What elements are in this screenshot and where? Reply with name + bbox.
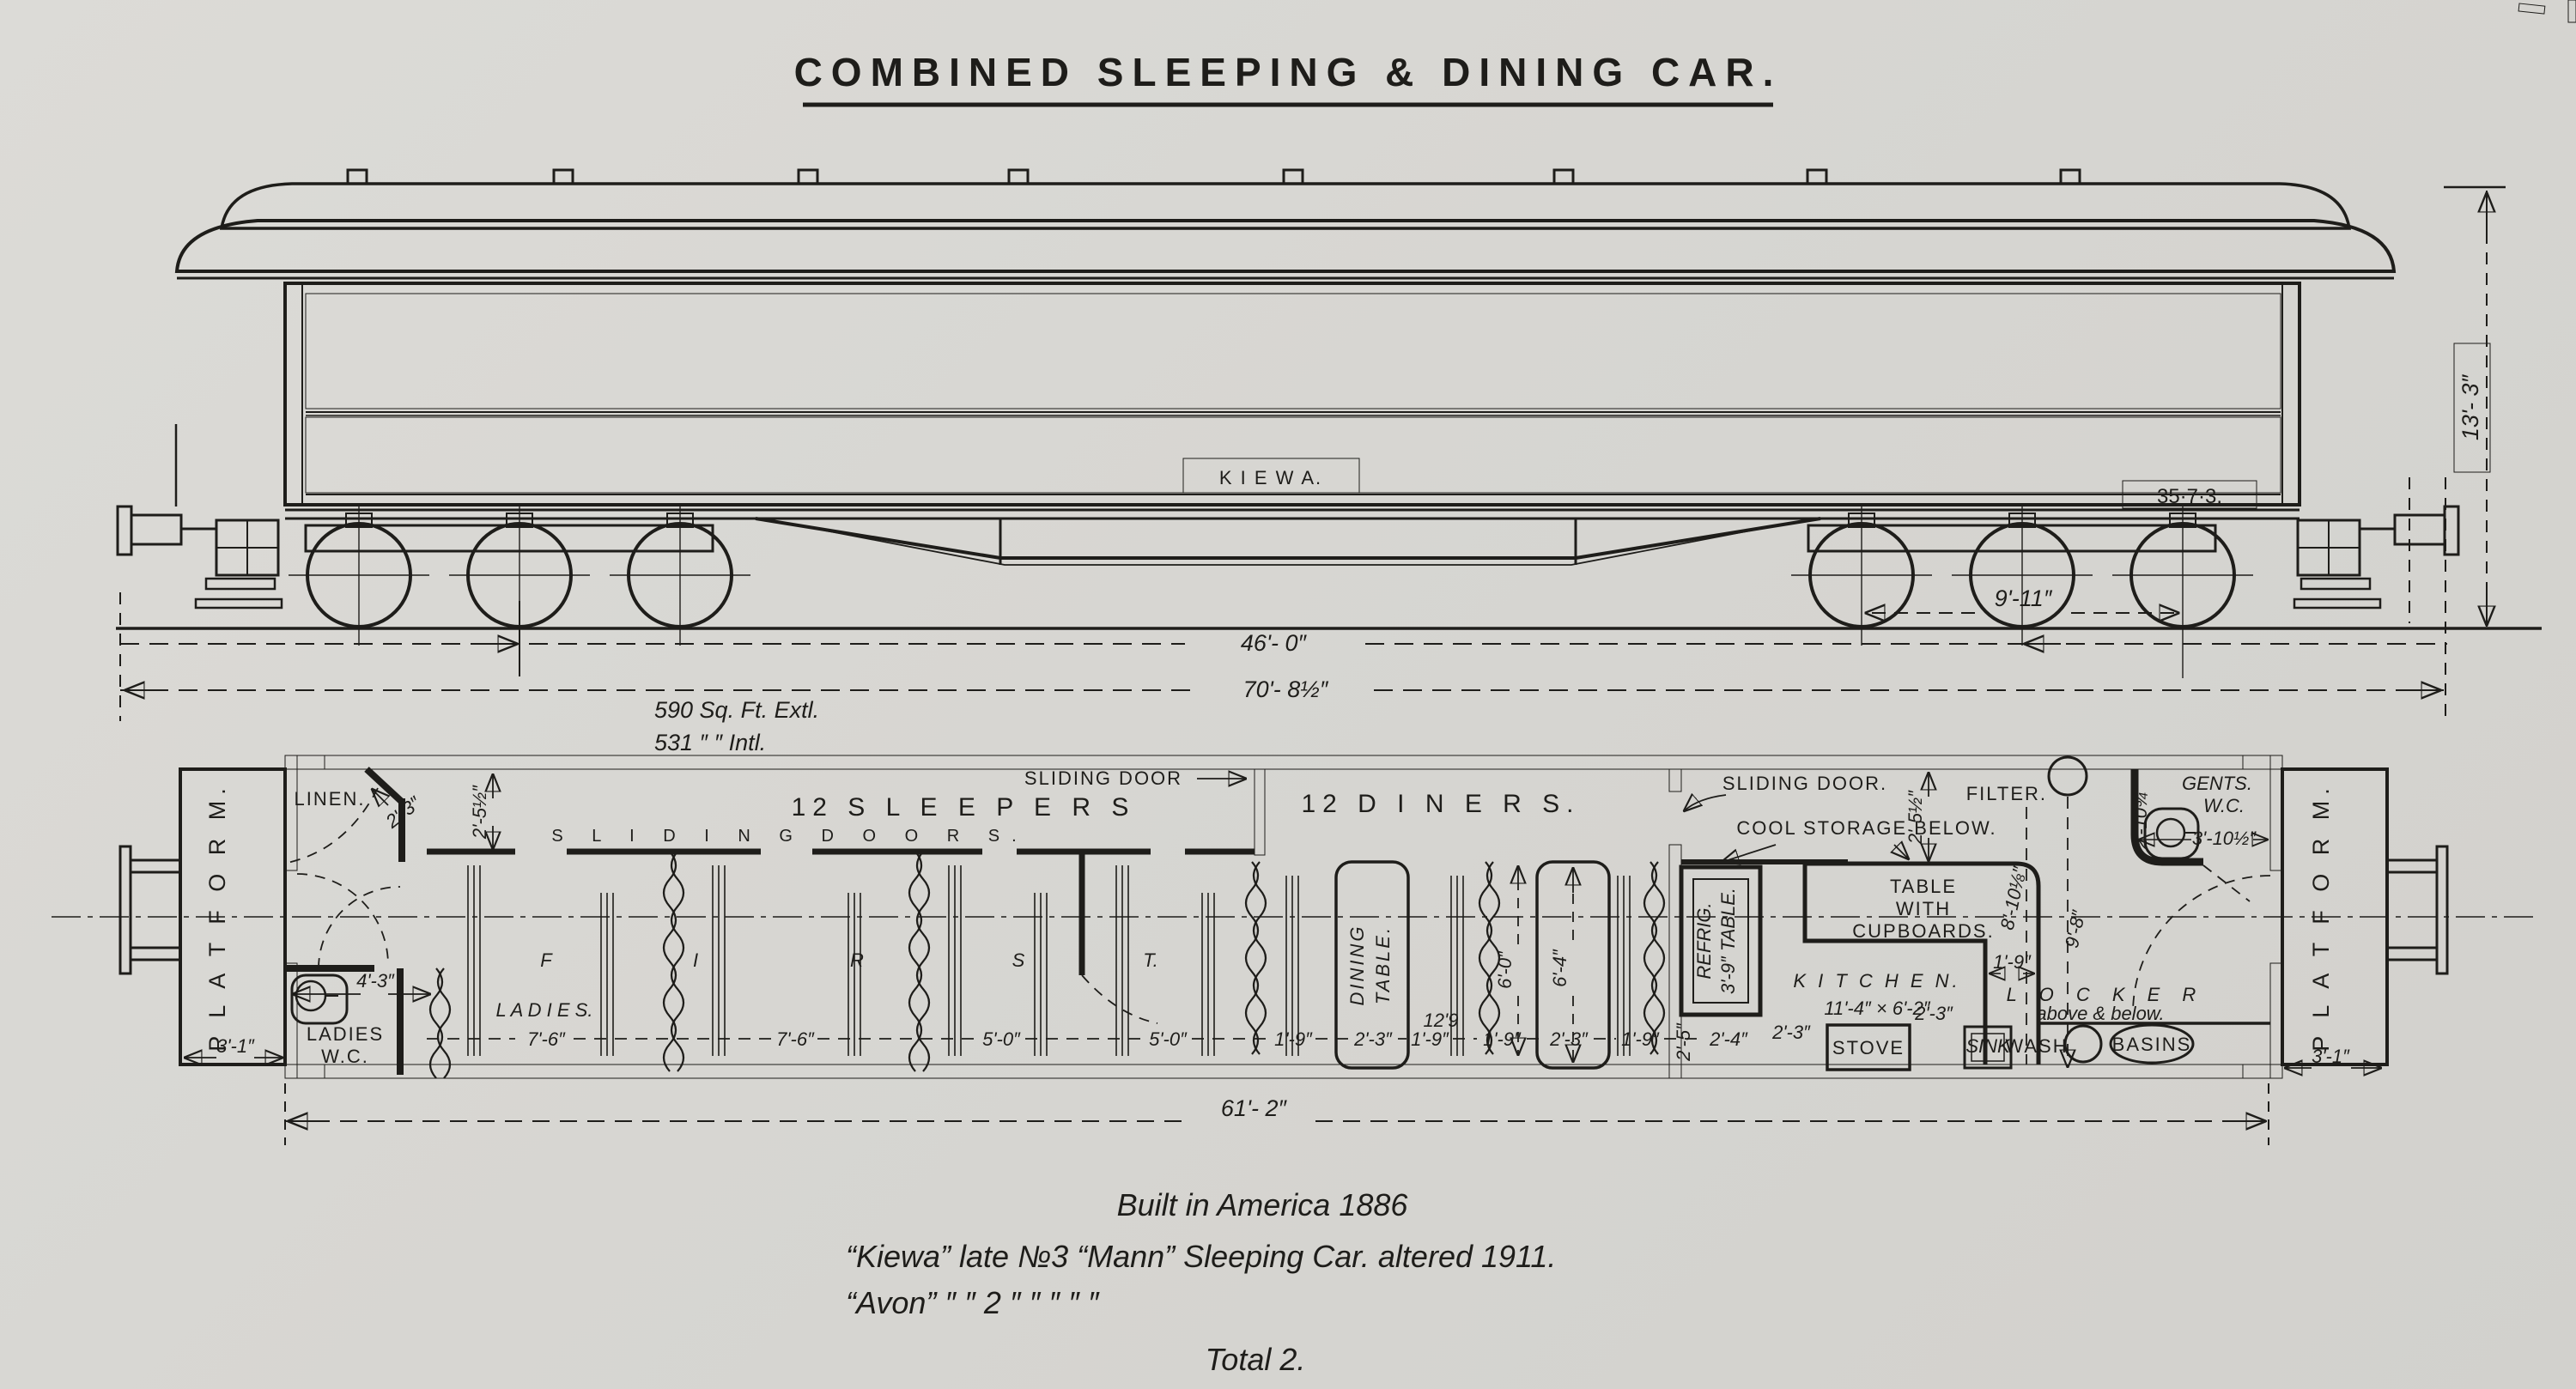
left-end-gear <box>118 424 282 608</box>
dim-2-3-b: 2'-3″ <box>1549 1028 1589 1050</box>
svg-text:4'-3″: 4'-3″ <box>356 970 395 992</box>
locker-area: L O C K E R above & below. WASH BASINS <box>2005 984 2270 1063</box>
filter-label: FILTER. <box>1966 783 2047 804</box>
refrig-table-label: 3'-9″ TABLE. <box>1717 888 1739 994</box>
gents-label2: W.C. <box>2203 795 2245 816</box>
plan-top-wall <box>285 755 2282 769</box>
plan-dimension-row: 7'-6″ 7'-6″ 5'-0″ 5'-0″ 1'-9″ 2'-3″ 1'-9… <box>427 1028 1748 1050</box>
sink-label: SINK <box>1965 1035 2011 1057</box>
dim-bogie-wheelbase: 9'-11″ <box>1995 585 2053 611</box>
dim-2-5: 2'-5″ <box>1673 1022 1694 1062</box>
sliding-doors-spread-label: S L I D I N G D O O R S. <box>551 827 1028 846</box>
refrig-label: REFRIG. <box>1693 902 1715 979</box>
berth-seats <box>468 865 1214 1056</box>
dim-3-10half: 3'-10½″ <box>2192 828 2257 849</box>
dim-7-6-a: 7'-6″ <box>527 1028 566 1050</box>
dim-9-8: 9'-8″ <box>2061 907 2090 949</box>
left-end-door-swing <box>297 874 388 965</box>
ladies-wc-label2: W.C. <box>321 1046 369 1067</box>
dim-6-4: 6'-4″ <box>1549 949 1571 987</box>
gents-label1: GENTS. <box>2182 773 2252 794</box>
sliding-door-kitchen-label: SLIDING DOOR. <box>1722 773 1887 794</box>
dim-2-4: 2'-4″ <box>1709 1028 1748 1050</box>
svg-text:3'-1″: 3'-1″ <box>216 1035 255 1057</box>
dining-table-label2: TABLE. <box>1372 925 1394 1004</box>
dim-61-2: 61'- 2″ <box>285 1083 2269 1145</box>
page-title: COMBINED SLEEPING & DINING CAR. <box>794 50 1783 94</box>
drawing-sheet: COMBINED SLEEPING & DINING CAR. K I E W … <box>0 0 2576 1389</box>
dim-stove-right-2-3: 2'-3″ <box>1914 1003 1953 1024</box>
area-internal: 531 ″ ″ Intl. <box>654 730 766 755</box>
gents-wc: GENTS. W.C. 2'-10¾″ 3'-10½″ <box>2129 769 2267 901</box>
roof-vents <box>348 170 2080 184</box>
first-letter-r: R <box>850 949 864 971</box>
wash-label: WASH <box>2005 1035 2068 1057</box>
linen-closet: LINEN. 2'-3″ <box>283 769 425 864</box>
basins-label: BASINS <box>2112 1034 2192 1055</box>
railway-car-drawing: COMBINED SLEEPING & DINING CAR. K I E W … <box>0 0 2576 1389</box>
svg-text:3'-1″: 3'-1″ <box>2312 1046 2350 1067</box>
ladies-spread-label: L A D I E S. <box>496 999 593 1021</box>
svg-text:61'- 2″: 61'- 2″ <box>1221 1095 1288 1121</box>
stove-label: STOVE <box>1832 1037 1905 1058</box>
floor-plan: P L A T F O R M. P L A T F O R M. LINEN.… <box>52 755 2533 1145</box>
linen-label: LINEN. <box>295 788 366 810</box>
dim-1-9-c: 1'-9″ <box>1483 1028 1522 1050</box>
dim-5-0-a: 5'-0″ <box>982 1028 1021 1050</box>
photo-edge-artifacts <box>2518 0 2576 22</box>
dim-bogie-centres: 46'- 0″ <box>1241 630 1308 656</box>
ladies-wc-label1: LADIES <box>307 1023 384 1045</box>
dim-3-1-left: 3'-1″ <box>185 1035 282 1058</box>
kitchen-label: K I T C H E N. <box>1793 970 1960 992</box>
weight-code-label: 35·7·3. <box>2157 485 2222 508</box>
cool-storage-label: COOL STORAGE BELOW. <box>1736 817 1996 839</box>
dim-height: 13'- 3″ <box>2458 373 2483 440</box>
dining-table-label1: DINING <box>1346 925 1368 1006</box>
footer-total: Total 2. <box>1206 1342 1306 1377</box>
right-end-gear <box>2294 506 2458 608</box>
footer-built: Built in America 1886 <box>1117 1187 1409 1222</box>
dim-length-over-buffers: 70'- 8½″ <box>1243 676 1329 702</box>
plan-bottom-wall <box>285 1064 2282 1078</box>
dim-8-10: 8'-10⅛″ <box>1996 864 2031 931</box>
dining-section: 12 D I N E R S. DINING TABLE. 6'-0″ 6'-4… <box>1286 790 1664 1068</box>
left-platform-label: P L A T F O R M. <box>204 782 230 1052</box>
sliding-door-sleepers-label: SLIDING DOOR <box>1024 767 1182 789</box>
area-external: 590 Sq. Ft. Extl. <box>654 697 819 723</box>
cupboards-label3: CUPBOARDS. <box>1852 920 1994 942</box>
sleepers-label: 12 S L E E P E R S <box>792 793 1136 822</box>
first-letter-i: I <box>693 949 698 971</box>
plan-buffers <box>120 846 2447 974</box>
cupboards-label2: WITH <box>1896 898 1951 919</box>
dim-7-6-b: 7'-6″ <box>776 1028 815 1050</box>
car-name-label: K I E W A. <box>1219 467 1322 488</box>
dim-stove-left-2-3: 2'-3″ <box>1771 1022 1811 1043</box>
truss-rods <box>756 519 1820 565</box>
dim-cool-2-5half: 2'-5½″ <box>1905 790 1926 845</box>
diners-label: 12 D I N E R S. <box>1301 790 1580 818</box>
title-block: COMBINED SLEEPING & DINING CAR. <box>794 50 1783 105</box>
right-platform-label: P L A T F O R M. <box>2308 782 2334 1052</box>
locker-label2: above & below. <box>2036 1003 2164 1024</box>
sleep-dine-bulkhead <box>1255 769 1265 855</box>
dim-1-9-b: 1'-9″ <box>1411 1028 1449 1050</box>
wash-basin-1 <box>2065 1026 2101 1062</box>
elevation-dimensions: 9'-11″ 46'- 0″ 70'- 8½″ 13'- 3″ <box>120 187 2506 721</box>
dim-left-2-5half: 2'-5½″ <box>469 785 490 840</box>
dim-5-0-b: 5'-0″ <box>1149 1028 1188 1050</box>
first-letter-t: T. <box>1143 949 1158 971</box>
cupboards-label1: TABLE <box>1890 876 1957 897</box>
footer-kiewa: “Kiewa” late №3 “Mann” Sleeping Car. alt… <box>846 1239 1556 1274</box>
window-band <box>306 294 2281 409</box>
filter-tank <box>2049 757 2087 795</box>
dim-1-9-d: 1'-9″ <box>1621 1028 1660 1050</box>
area-note: 590 Sq. Ft. Extl. 531 ″ ″ Intl. <box>654 697 819 755</box>
first-letter-f: F <box>540 949 553 971</box>
dim-2-3-a: 2'-3″ <box>1353 1028 1393 1050</box>
footer-avon: “Avon” ″ ″ 2 ″ ″ ″ ″ ″ <box>846 1285 1100 1320</box>
dim-1-9-a: 1'-9″ <box>1274 1028 1313 1050</box>
footer-notes: Built in America 1886 “Kiewa” late №3 “M… <box>846 1187 1556 1377</box>
dim-6-0: 6'-0″ <box>1494 950 1516 989</box>
side-elevation: K I E W A. 35·7·3. <box>116 170 2542 755</box>
first-letter-s: S <box>1012 949 1025 971</box>
